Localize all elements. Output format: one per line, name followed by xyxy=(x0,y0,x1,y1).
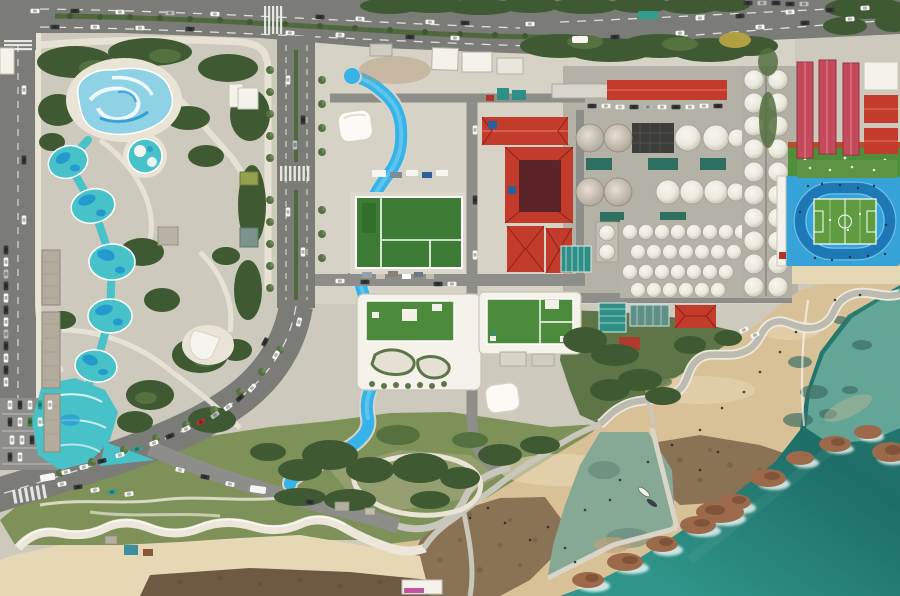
white-tent xyxy=(337,109,374,143)
wave-pool xyxy=(66,58,182,142)
small-tank-rows xyxy=(620,220,762,298)
aerial-photo xyxy=(0,0,900,596)
kiddie-pool xyxy=(123,134,167,178)
shade-canopies xyxy=(42,250,60,452)
small-building xyxy=(158,227,178,245)
dome-pavilion xyxy=(182,325,234,365)
green-roof-building-a xyxy=(357,294,481,390)
soccer-pitch xyxy=(814,199,876,244)
